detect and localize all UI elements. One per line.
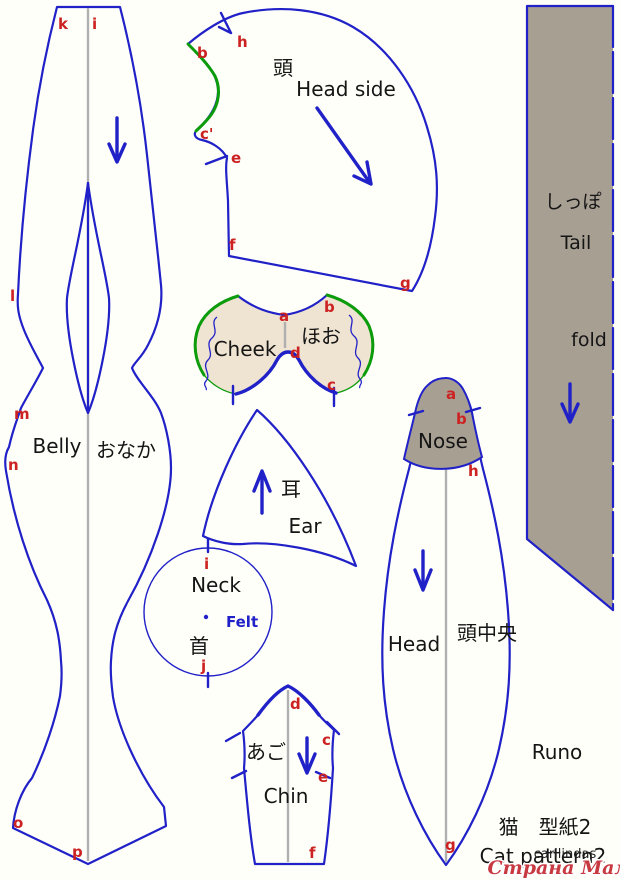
point-label: j [200,657,206,675]
ear-name-en: Ear [288,514,322,538]
footer-text: Runo 猫 型紙2 Cat pattern2 carilindas Стран… [480,740,620,879]
tail-piece: しっぽ Tail fold [527,6,613,610]
tail-name-ja: しっぽ [544,191,601,213]
chin-piece: d c e f あご Chin [226,686,339,864]
nose-region [404,378,482,469]
point-label: b [456,410,467,428]
sheet-title-ja: 猫 型紙2 [499,815,592,839]
tail-name-en: Tail [560,232,592,254]
cheek-name-en: Cheek [214,337,277,361]
ear-piece: 耳 Ear [203,410,356,566]
point-label: o [13,814,23,832]
tail-fill [527,6,613,610]
pattern-sheet: k i l m n o p Belly おなか b h c' e f g 頭 H… [0,0,620,880]
point-label: p [72,843,83,861]
tail-fold-note: fold [571,329,607,351]
point-label: m [14,405,30,423]
point-label: i [92,15,97,33]
belly-name-en: Belly [33,434,82,458]
point-label: d [290,695,301,713]
cat-sewing-pattern-diagram: k i l m n o p Belly おなか b h c' e f g 頭 H… [0,0,620,880]
point-label: l [10,287,15,305]
belly-piece: k i l m n o p Belly おなか [5,7,171,864]
ear-name-ja: 耳 [281,477,301,501]
neck-material-note: Felt [226,613,258,631]
head-side-grain-arrow-icon [317,108,371,184]
point-label: e [318,768,328,786]
point-label: h [237,33,248,51]
point-label: c [327,376,336,394]
head-side-h-mark [219,13,231,33]
belly-grain-arrow-icon [109,118,125,162]
point-label: i [204,555,209,573]
nose-name-en: Nose [418,429,468,453]
point-label: f [229,236,236,254]
head-center-grain-arrow-icon [415,551,431,590]
head-side-e-notch [206,156,227,164]
chin-name-en: Chin [264,784,309,808]
point-label: a [279,307,289,325]
point-label: c [322,731,331,749]
neck-piece: i j Neck Felt 首 [144,539,272,687]
point-label: n [8,456,19,474]
head-side-name-ja: 頭 [273,56,293,80]
point-label: g [400,274,411,292]
chin-name-ja: あご [246,740,286,764]
point-label: f [309,844,316,862]
point-label: a [446,385,456,403]
head-center-piece: a b h Nose g Head 頭中央 [382,378,517,865]
chin-grain-arrow-icon [299,738,315,773]
ear-outline [203,410,356,566]
neck-name-en: Neck [191,573,241,597]
author-name: Runo [532,740,583,764]
chin-left-notch-1 [226,733,240,741]
neck-center-dot [204,615,208,619]
ear-grain-arrow-icon [254,471,270,513]
point-label: h [468,462,479,480]
cheek-piece: a b d c Cheek ほお [195,295,373,406]
neck-name-ja: 首 [189,634,209,658]
point-label: g [445,836,456,854]
point-label: d [290,344,301,362]
point-label: c' [200,125,213,143]
belly-name-ja: おなか [96,438,156,462]
head-center-name-en: Head [388,632,440,656]
watermark-site: Страна Мам [487,857,620,879]
point-label: k [58,15,69,33]
point-label: b [324,298,335,316]
cheek-name-ja: ほお [301,324,341,348]
head-center-name-ja: 頭中央 [457,621,517,645]
head-side-outline [188,9,437,291]
head-side-piece: b h c' e f g 頭 Head side [188,9,437,292]
point-label: e [231,149,241,167]
head-side-name-en: Head side [296,77,396,101]
point-label: b [197,44,208,62]
